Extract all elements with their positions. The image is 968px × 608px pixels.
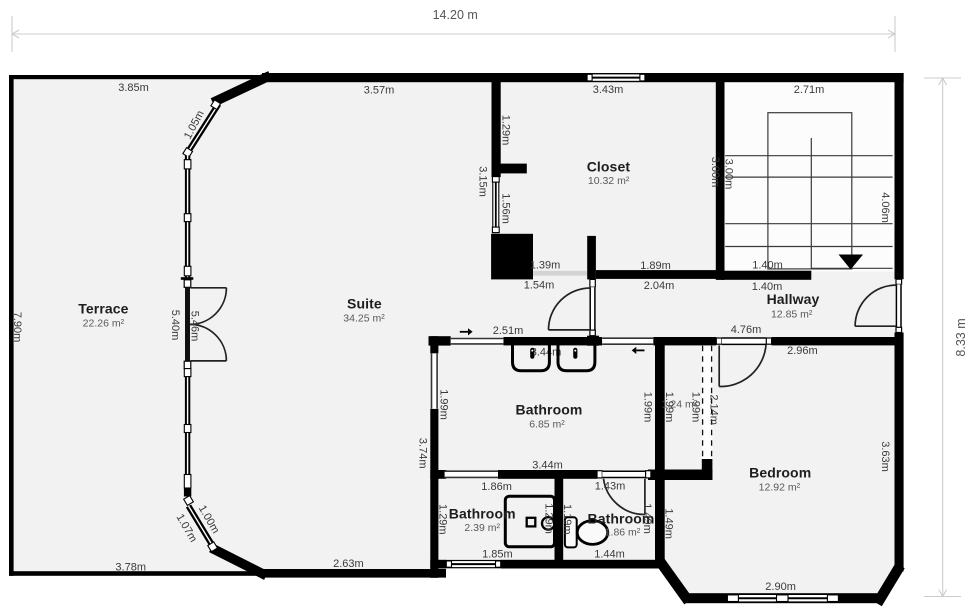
svg-text:5.40m: 5.40m bbox=[169, 310, 181, 341]
svg-text:1.29m: 1.29m bbox=[500, 115, 512, 146]
svg-text:3.15m: 3.15m bbox=[477, 166, 489, 197]
svg-text:1.99m: 1.99m bbox=[438, 389, 450, 420]
svg-text:5.46m: 5.46m bbox=[189, 311, 201, 342]
svg-text:Bedroom: Bedroom bbox=[749, 464, 811, 480]
svg-text:1.54m: 1.54m bbox=[524, 280, 555, 292]
svg-text:1.40m: 1.40m bbox=[752, 260, 783, 272]
svg-text:3.63m: 3.63m bbox=[879, 441, 891, 472]
svg-text:1.99m: 1.99m bbox=[663, 392, 675, 423]
svg-text:Closet: Closet bbox=[587, 158, 631, 174]
svg-text:2.39 m²: 2.39 m² bbox=[464, 522, 500, 534]
svg-text:2.96m: 2.96m bbox=[787, 345, 818, 357]
svg-text:1.99m: 1.99m bbox=[642, 392, 654, 423]
svg-text:1.56m: 1.56m bbox=[500, 193, 512, 224]
svg-text:3.57m: 3.57m bbox=[364, 84, 395, 96]
svg-text:Suite: Suite bbox=[347, 296, 382, 312]
svg-text:Terrace: Terrace bbox=[78, 301, 128, 317]
svg-text:4.76m: 4.76m bbox=[731, 324, 762, 336]
svg-text:12.85 m²: 12.85 m² bbox=[771, 309, 813, 321]
svg-text:3.00m: 3.00m bbox=[723, 159, 735, 190]
svg-text:1.29m: 1.29m bbox=[542, 503, 554, 534]
svg-text:1.86 m²: 1.86 m² bbox=[605, 527, 641, 539]
svg-text:4.06m: 4.06m bbox=[879, 192, 891, 223]
svg-text:Bathroom: Bathroom bbox=[516, 402, 583, 418]
svg-text:3.78m: 3.78m bbox=[115, 562, 146, 574]
svg-text:1.99m: 1.99m bbox=[690, 392, 702, 423]
svg-text:3.85m: 3.85m bbox=[118, 82, 149, 94]
svg-text:12.92 m²: 12.92 m² bbox=[759, 481, 801, 493]
svg-text:2.90m: 2.90m bbox=[765, 581, 796, 593]
svg-text:1.44m: 1.44m bbox=[594, 548, 625, 560]
svg-text:1.39m: 1.39m bbox=[530, 259, 561, 271]
svg-text:1.40m: 1.40m bbox=[752, 281, 783, 293]
svg-text:10.32 m²: 10.32 m² bbox=[588, 175, 630, 187]
svg-text:1.49m: 1.49m bbox=[663, 508, 675, 539]
svg-text:2.14m: 2.14m bbox=[707, 394, 719, 425]
svg-text:7.90m: 7.90m bbox=[11, 312, 23, 343]
svg-text:2.63m: 2.63m bbox=[333, 558, 364, 570]
svg-text:3.44m: 3.44m bbox=[532, 460, 563, 472]
svg-text:6.85 m²: 6.85 m² bbox=[529, 418, 565, 430]
svg-text:1.43m: 1.43m bbox=[595, 481, 626, 493]
svg-text:1.85m: 1.85m bbox=[482, 548, 513, 560]
svg-text:8.33 m: 8.33 m bbox=[954, 318, 968, 356]
svg-text:2.71m: 2.71m bbox=[794, 84, 825, 96]
svg-text:1.49m: 1.49m bbox=[641, 503, 653, 534]
svg-text:34.25 m²: 34.25 m² bbox=[343, 313, 385, 325]
svg-text:1.29m: 1.29m bbox=[437, 504, 449, 535]
svg-text:Bathroom: Bathroom bbox=[449, 506, 516, 522]
svg-text:3.00m: 3.00m bbox=[709, 157, 721, 188]
svg-text:2.04m: 2.04m bbox=[644, 280, 675, 292]
svg-text:1.86m: 1.86m bbox=[481, 481, 512, 493]
svg-text:14.20 m: 14.20 m bbox=[433, 8, 478, 22]
svg-text:3.43m: 3.43m bbox=[593, 84, 624, 96]
svg-text:2.51m: 2.51m bbox=[493, 325, 524, 337]
svg-text:3.74m: 3.74m bbox=[417, 438, 429, 469]
svg-text:1.19m: 1.19m bbox=[561, 504, 573, 535]
svg-text:22.26 m²: 22.26 m² bbox=[83, 318, 125, 330]
svg-text:1.89m: 1.89m bbox=[640, 260, 671, 272]
svg-text:Hallway: Hallway bbox=[767, 291, 820, 307]
